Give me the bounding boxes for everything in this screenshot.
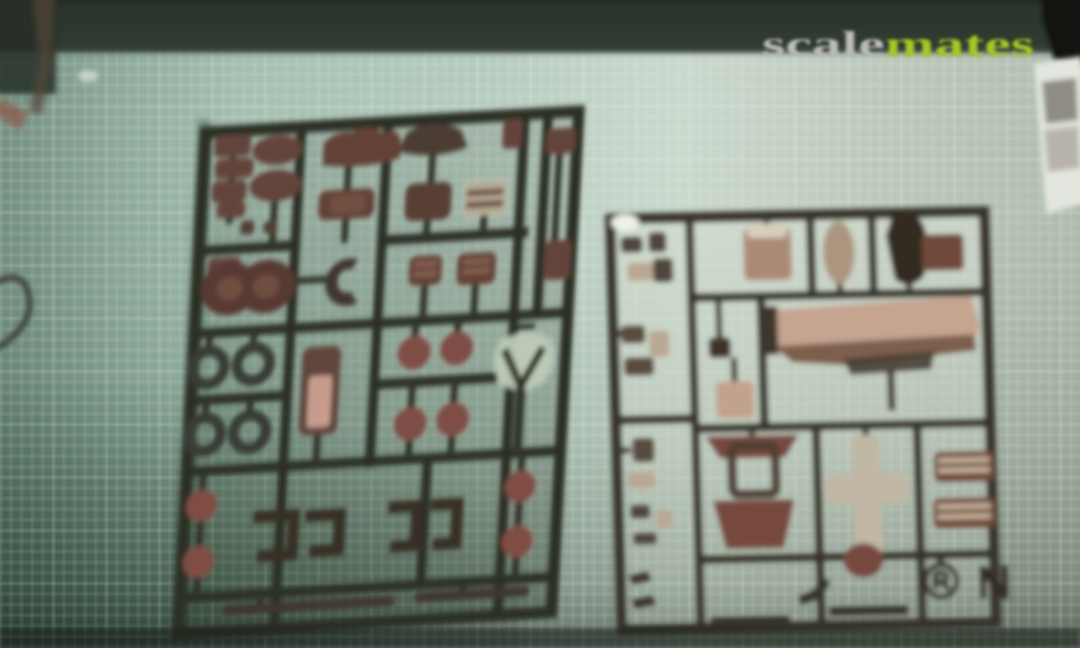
svg-text:scalemates: scalemates xyxy=(762,24,1034,64)
